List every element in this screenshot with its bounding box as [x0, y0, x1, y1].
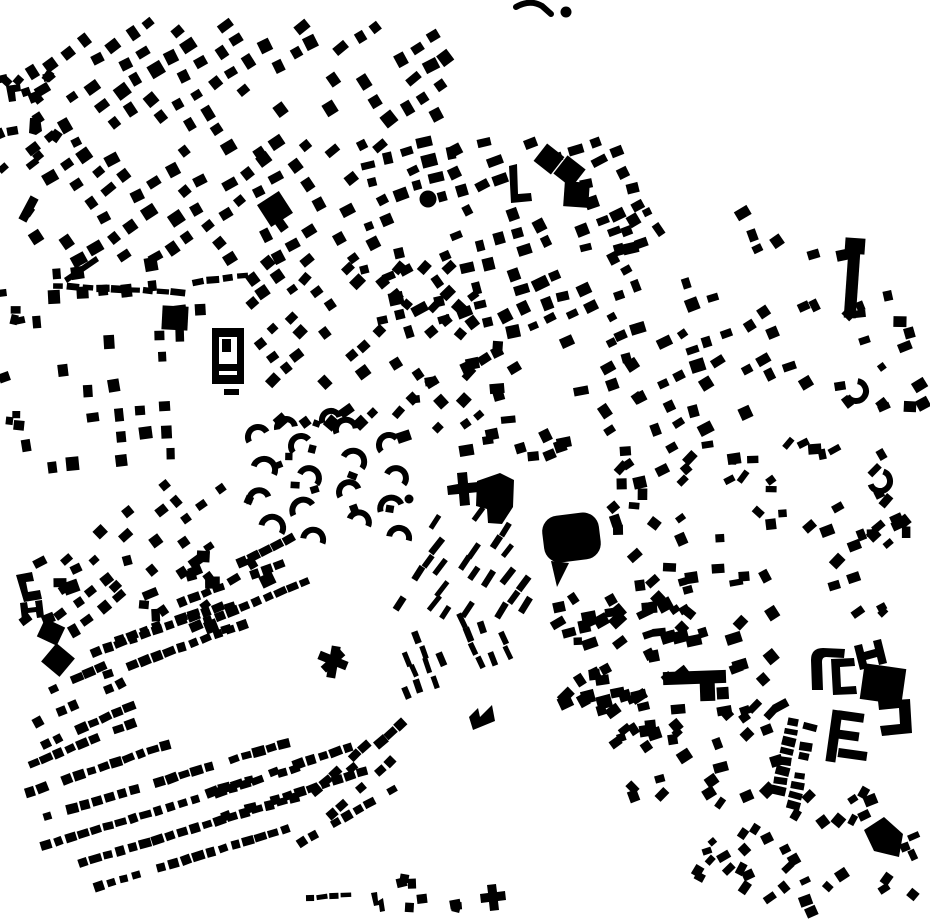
building	[531, 217, 547, 233]
building	[499, 567, 516, 586]
building	[376, 315, 388, 325]
building	[69, 563, 82, 575]
building	[498, 631, 509, 646]
building	[113, 82, 132, 101]
building	[206, 276, 219, 284]
cluster-mid-strips	[393, 506, 533, 620]
building	[64, 743, 76, 754]
building	[424, 325, 439, 339]
building	[176, 826, 188, 837]
building	[114, 817, 127, 827]
building	[729, 578, 743, 586]
building	[154, 109, 169, 124]
crescent-building	[300, 468, 319, 484]
cluster-mid-band-scatter	[389, 334, 644, 470]
building	[13, 420, 25, 431]
building	[429, 514, 442, 530]
building	[217, 18, 234, 34]
building	[506, 207, 521, 222]
building	[465, 357, 480, 371]
building	[751, 243, 763, 254]
building	[296, 836, 309, 849]
building	[112, 724, 125, 734]
building	[427, 595, 442, 612]
building	[642, 629, 656, 640]
building	[299, 577, 310, 587]
building	[241, 53, 257, 70]
building	[626, 182, 640, 195]
building	[67, 699, 79, 712]
building	[39, 839, 52, 851]
building	[343, 742, 354, 753]
landmark-building	[561, 7, 572, 18]
building	[31, 715, 44, 728]
building	[474, 178, 490, 192]
building	[302, 34, 319, 51]
building	[556, 291, 570, 303]
building	[266, 351, 279, 364]
building	[514, 442, 527, 455]
landmark-building	[860, 663, 907, 704]
crescent-building	[277, 419, 295, 430]
building	[413, 678, 424, 693]
building	[144, 257, 159, 273]
building	[122, 555, 133, 567]
building	[511, 227, 524, 239]
landmark-building	[551, 561, 569, 587]
building	[150, 650, 164, 663]
building	[552, 601, 566, 614]
building	[103, 335, 115, 350]
landmark-building	[16, 572, 42, 602]
building	[103, 684, 114, 695]
building	[241, 835, 255, 847]
building	[308, 444, 317, 454]
building	[286, 581, 299, 592]
building	[897, 340, 913, 353]
building	[222, 274, 233, 282]
landmark-building	[469, 705, 495, 730]
building	[379, 213, 394, 228]
landmark-building	[700, 682, 716, 702]
building	[159, 739, 172, 751]
building	[5, 417, 13, 426]
building	[481, 569, 496, 588]
building	[559, 334, 575, 349]
building	[286, 284, 298, 295]
crescent-building	[350, 512, 369, 526]
building	[251, 745, 266, 758]
building	[627, 722, 640, 736]
building	[672, 417, 685, 429]
building	[769, 233, 785, 249]
building	[145, 563, 158, 576]
building	[439, 314, 453, 327]
building	[325, 143, 341, 158]
building	[428, 536, 445, 555]
building	[763, 367, 776, 381]
cluster-se-upper-scatter	[550, 590, 781, 711]
building	[747, 456, 758, 464]
building	[473, 300, 486, 310]
building	[527, 451, 539, 461]
building	[834, 381, 846, 391]
building	[392, 405, 405, 419]
building	[267, 323, 279, 335]
building	[280, 824, 291, 834]
building	[875, 448, 887, 461]
building	[372, 324, 386, 338]
building	[195, 499, 208, 511]
building	[490, 534, 503, 549]
building	[725, 631, 743, 646]
building	[170, 288, 186, 296]
building	[431, 675, 440, 689]
building	[595, 674, 610, 686]
building	[164, 830, 175, 841]
building	[701, 440, 713, 448]
building	[237, 273, 248, 279]
building	[497, 308, 514, 325]
building	[786, 800, 801, 811]
building	[715, 534, 724, 543]
building	[850, 605, 865, 619]
building	[436, 49, 454, 67]
building	[756, 672, 771, 687]
building	[258, 544, 273, 557]
building	[542, 448, 557, 461]
building	[743, 319, 757, 333]
building	[574, 222, 590, 237]
building	[627, 548, 643, 564]
building	[162, 646, 176, 658]
building	[212, 236, 227, 251]
landmark-building	[563, 181, 590, 208]
building	[299, 416, 312, 429]
building	[12, 411, 20, 418]
building	[737, 469, 750, 483]
building	[368, 21, 381, 35]
landmark-building	[371, 892, 385, 912]
building	[259, 227, 273, 243]
building	[265, 743, 277, 753]
building	[613, 329, 627, 342]
building	[815, 814, 830, 829]
building	[581, 636, 599, 650]
building	[630, 279, 642, 293]
building	[11, 306, 21, 314]
building	[411, 630, 422, 644]
building	[0, 162, 9, 174]
building	[405, 903, 414, 913]
building	[893, 316, 906, 327]
building	[583, 299, 599, 314]
building	[701, 785, 717, 800]
building	[639, 724, 654, 737]
crescent-building	[261, 517, 283, 534]
building	[364, 221, 375, 231]
building	[107, 231, 121, 245]
crescent-building	[387, 468, 406, 484]
building	[192, 278, 204, 287]
building	[765, 518, 777, 530]
building	[56, 705, 68, 717]
building	[434, 580, 449, 598]
building	[57, 364, 68, 377]
building	[367, 407, 379, 419]
building	[911, 377, 928, 393]
building	[75, 146, 93, 164]
building	[72, 769, 86, 782]
building	[778, 509, 787, 517]
building	[52, 268, 61, 279]
building	[758, 569, 772, 584]
building	[883, 538, 894, 549]
building	[21, 439, 32, 452]
landmark-building	[224, 389, 239, 395]
building	[382, 151, 394, 164]
building	[819, 524, 835, 538]
building	[141, 17, 154, 30]
building	[488, 651, 499, 666]
building	[189, 202, 203, 217]
building	[649, 423, 662, 437]
building	[52, 747, 65, 759]
building	[486, 154, 504, 168]
building	[697, 420, 715, 437]
building	[629, 502, 640, 510]
landmark-building	[41, 643, 75, 677]
building	[151, 609, 160, 622]
building	[60, 45, 76, 60]
building	[196, 550, 210, 562]
building	[111, 707, 124, 719]
building	[97, 599, 112, 614]
building	[205, 847, 216, 858]
landmark-building	[516, 3, 551, 14]
building	[441, 260, 456, 275]
building	[83, 79, 101, 96]
building	[516, 300, 531, 316]
building	[616, 166, 630, 180]
building	[518, 596, 533, 614]
building	[477, 621, 487, 635]
building	[645, 574, 660, 589]
building	[0, 289, 7, 297]
building	[317, 375, 332, 391]
building	[433, 78, 447, 92]
building	[228, 754, 240, 764]
building	[126, 287, 140, 293]
building	[663, 563, 676, 572]
building	[347, 471, 358, 481]
building	[102, 641, 114, 653]
building	[179, 37, 198, 55]
building	[799, 876, 811, 886]
building	[318, 326, 332, 340]
building	[70, 136, 82, 147]
building	[439, 605, 451, 620]
building	[290, 46, 304, 60]
building	[164, 620, 175, 630]
building	[663, 399, 677, 413]
landmark-building	[480, 884, 506, 911]
building	[485, 428, 500, 441]
building	[187, 591, 201, 603]
building	[299, 139, 312, 152]
building	[567, 592, 580, 605]
building	[41, 169, 59, 186]
building	[177, 798, 188, 808]
building	[40, 738, 52, 750]
building	[763, 648, 780, 665]
building	[129, 188, 145, 203]
building	[316, 894, 328, 901]
building	[59, 233, 75, 250]
building	[702, 847, 713, 856]
building	[114, 408, 124, 422]
building	[343, 171, 359, 186]
building	[454, 327, 467, 340]
landmark-building	[222, 339, 231, 352]
building	[90, 52, 105, 66]
building	[620, 264, 632, 276]
landmark-building	[37, 618, 65, 645]
building	[354, 30, 368, 44]
building	[739, 727, 754, 742]
building	[210, 122, 224, 136]
building	[102, 821, 114, 831]
building	[114, 677, 126, 690]
building	[28, 758, 41, 769]
building	[657, 378, 670, 389]
building	[590, 153, 608, 168]
building	[305, 754, 317, 766]
building	[335, 799, 348, 812]
building	[575, 282, 592, 298]
building	[765, 475, 776, 486]
building	[201, 219, 215, 232]
building	[126, 659, 140, 671]
building	[450, 230, 463, 241]
landmark-building	[509, 164, 532, 203]
building	[528, 321, 539, 331]
building	[531, 275, 550, 292]
building	[738, 880, 752, 895]
building	[118, 528, 133, 543]
building	[164, 772, 178, 785]
building	[733, 615, 749, 631]
building	[143, 287, 154, 294]
cluster-ne-grid	[597, 205, 797, 437]
building	[138, 426, 153, 440]
building	[129, 784, 141, 795]
building	[121, 505, 134, 518]
landmark-building	[878, 699, 912, 736]
building	[847, 794, 858, 805]
building	[235, 555, 248, 568]
building	[220, 138, 238, 155]
building	[73, 596, 85, 608]
building	[671, 704, 686, 715]
building	[513, 283, 530, 296]
building	[798, 894, 813, 908]
building	[432, 422, 444, 434]
building	[103, 850, 114, 859]
building	[159, 401, 171, 411]
building	[374, 764, 387, 777]
building	[268, 767, 280, 778]
building	[507, 361, 522, 375]
building	[195, 304, 206, 316]
building	[640, 740, 654, 754]
building	[755, 352, 771, 367]
building	[238, 601, 250, 612]
building	[606, 337, 618, 348]
building	[183, 117, 197, 132]
building	[420, 153, 438, 169]
building	[674, 532, 688, 547]
building	[367, 177, 377, 187]
building	[200, 105, 216, 122]
building	[638, 488, 648, 500]
building	[48, 290, 61, 304]
building	[88, 733, 101, 745]
building	[613, 290, 625, 301]
building	[473, 410, 484, 421]
building	[97, 211, 112, 225]
building	[609, 207, 627, 223]
building	[904, 401, 917, 412]
building	[165, 802, 176, 813]
building	[727, 452, 742, 465]
building	[410, 42, 425, 56]
building	[231, 839, 241, 849]
building	[158, 352, 166, 362]
building	[867, 463, 881, 477]
building	[711, 737, 723, 750]
building	[365, 235, 381, 251]
building	[201, 588, 212, 598]
building	[676, 474, 688, 486]
building	[540, 296, 554, 311]
building	[561, 627, 576, 639]
building	[784, 728, 798, 736]
landmark-building	[663, 670, 726, 685]
building	[218, 843, 229, 853]
building	[228, 32, 243, 46]
building	[543, 312, 556, 324]
building	[604, 593, 618, 607]
building	[32, 555, 47, 569]
building	[127, 842, 138, 852]
building	[83, 284, 94, 290]
building	[65, 456, 79, 471]
building	[83, 385, 93, 398]
building	[103, 792, 115, 803]
building	[437, 191, 448, 203]
building	[410, 301, 429, 317]
building	[254, 284, 271, 300]
building	[273, 586, 287, 598]
building	[137, 654, 151, 668]
building	[589, 137, 602, 149]
building	[516, 574, 532, 592]
building	[749, 823, 761, 836]
building	[307, 830, 319, 842]
landmark-building	[864, 817, 903, 857]
building	[280, 361, 293, 374]
